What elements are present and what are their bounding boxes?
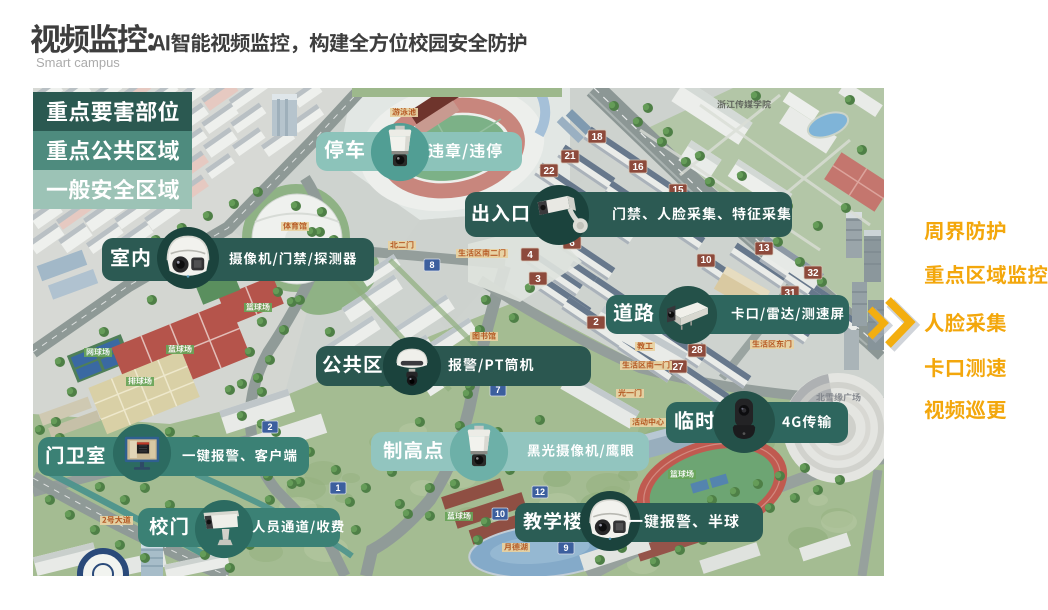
svg-text:9: 9 xyxy=(563,543,568,553)
svg-text:10: 10 xyxy=(495,509,505,519)
svg-text:3: 3 xyxy=(535,274,541,285)
svg-text:4: 4 xyxy=(527,250,533,261)
svg-text:2: 2 xyxy=(267,422,272,432)
svg-text:7: 7 xyxy=(495,385,500,395)
svg-text:10: 10 xyxy=(700,255,712,266)
svg-text:13: 13 xyxy=(758,243,770,254)
svg-text:21: 21 xyxy=(564,151,576,162)
svg-text:32: 32 xyxy=(807,268,819,279)
svg-text:16: 16 xyxy=(632,162,644,173)
svg-text:28: 28 xyxy=(691,345,703,356)
svg-text:22: 22 xyxy=(543,166,555,177)
svg-text:1: 1 xyxy=(335,483,340,493)
svg-text:12: 12 xyxy=(535,487,545,497)
svg-text:27: 27 xyxy=(672,362,684,373)
svg-text:18: 18 xyxy=(591,132,603,143)
svg-text:8: 8 xyxy=(429,260,434,270)
svg-text:2: 2 xyxy=(593,317,599,328)
